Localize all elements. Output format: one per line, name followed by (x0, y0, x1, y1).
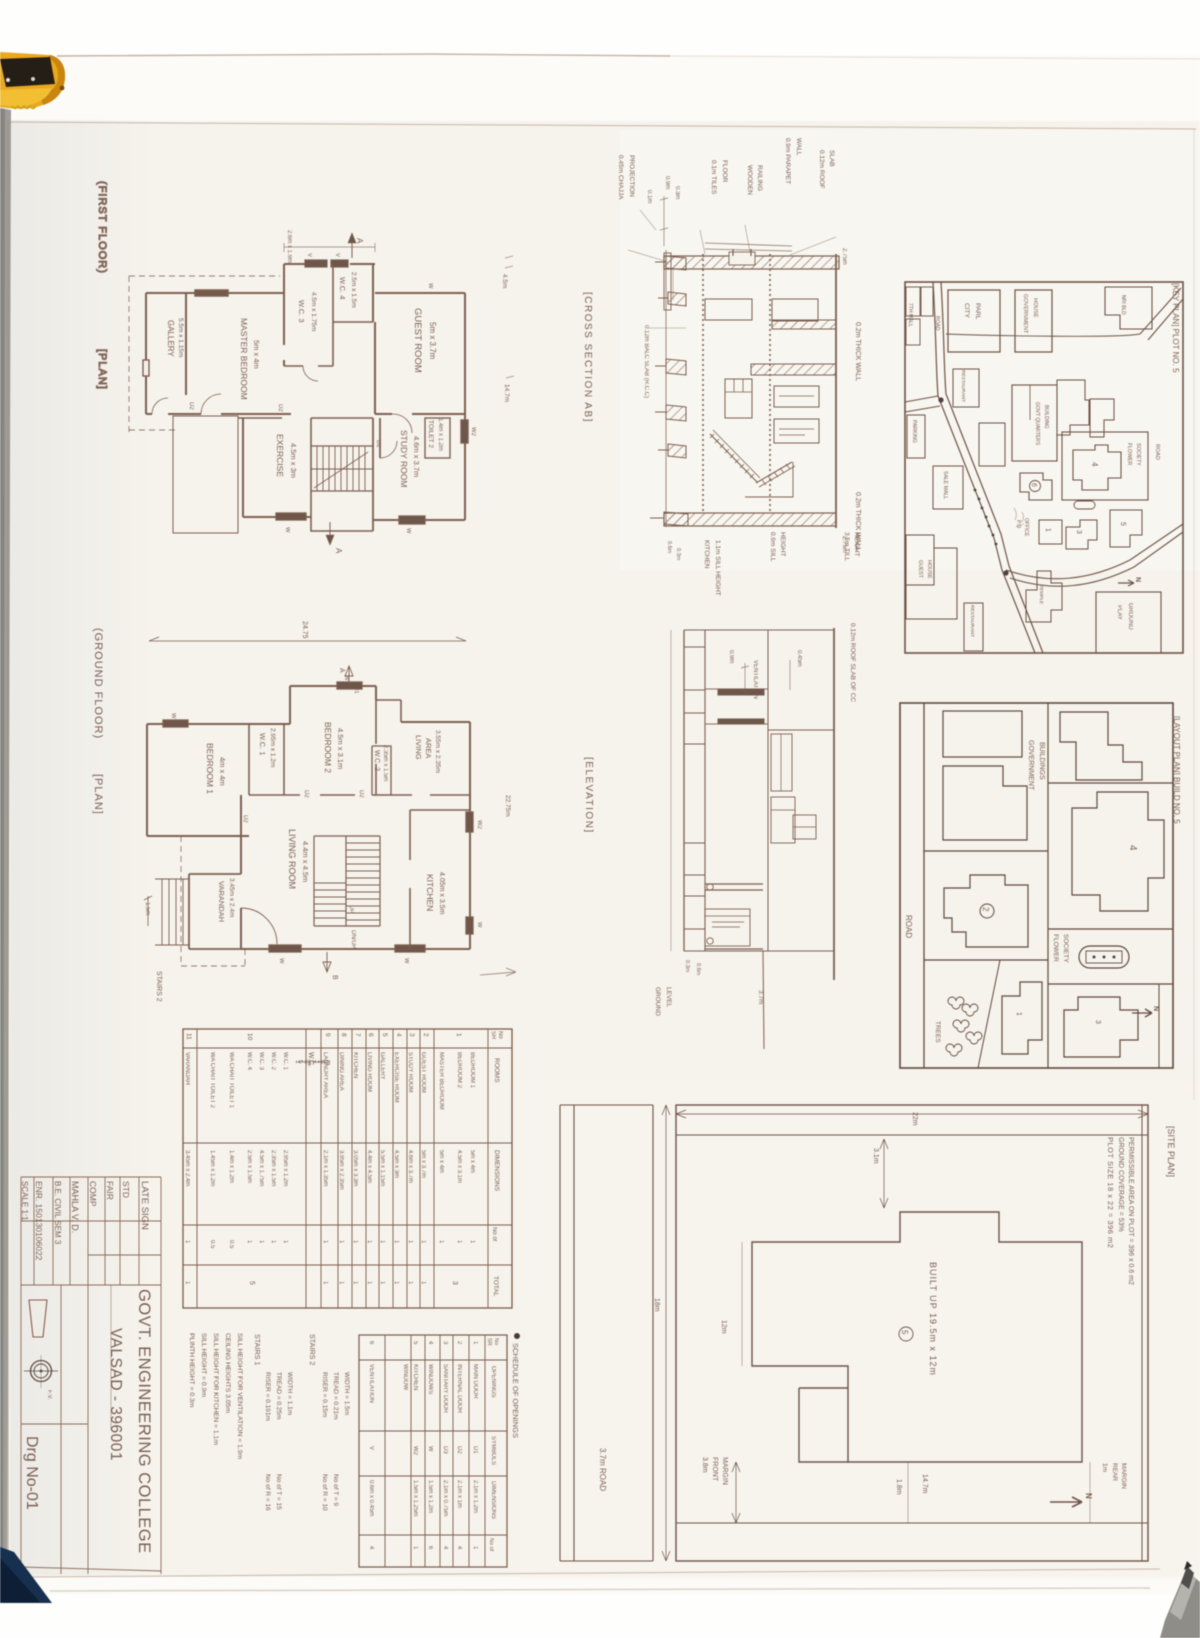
svg-text:OFFICE: OFFICE (1023, 518, 1029, 537)
svg-text:0.9m: 0.9m (728, 650, 734, 663)
svg-text:(GROUND FLOOR): (GROUND FLOOR) (92, 628, 104, 739)
svg-text:22.75m: 22.75m (504, 795, 511, 817)
svg-text:BUILT UP 19.5m x 12m: BUILT UP 19.5m x 12m (928, 1262, 938, 1376)
svg-text:STAIRS 2: STAIRS 2 (155, 971, 162, 1002)
svg-text:W2: W2 (476, 820, 482, 830)
svg-text:0.6m x 0.45m: 0.6m x 0.45m (368, 1480, 374, 1516)
svg-text:SILL HEIGHT FOR VENTILATION =: SILL HEIGHT FOR VENTILATION = 1.9m (236, 1333, 243, 1460)
svg-text:HEIGHT: HEIGHT (853, 532, 860, 557)
svg-text:W.C. 1: W.C. 1 (258, 733, 267, 756)
svg-text:3.7m: 3.7m (757, 990, 764, 1004)
svg-text:W2: W2 (470, 427, 476, 437)
svg-text:LATE SIGN: LATE SIGN (139, 1181, 150, 1230)
svg-text:WA CHAIT TOILET 2: WA CHAIT TOILET 2 (209, 1052, 215, 1109)
svg-text:3.05m x 3.3m: 3.05m x 3.3m (352, 1150, 358, 1186)
svg-text:3.45m x 2.4m: 3.45m x 2.4m (184, 1150, 190, 1186)
svg-text:SOCIETY: SOCIETY (1135, 443, 1141, 466)
svg-text:3: 3 (451, 1281, 458, 1285)
svg-text:0.5: 0.5 (209, 1240, 215, 1249)
svg-text:0.1m: 0.1m (646, 190, 652, 203)
svg-text:D2: D2 (375, 440, 381, 448)
svg-text:PROJECTION: PROJECTION (628, 155, 635, 197)
svg-text:MASTER BEDROOM: MASTER BEDROOM (438, 1052, 444, 1110)
svg-text:0.3m: 0.3m (674, 186, 680, 199)
svg-text:SR: SR (490, 1031, 496, 1040)
svg-text:GROUND COVERAGE = 53%: GROUND COVERAGE = 53% (1117, 1137, 1124, 1232)
svg-text:5m x 3.7m: 5m x 3.7m (420, 1150, 426, 1178)
svg-text:CEILING HEIGHTS 3.05m: CEILING HEIGHTS 3.05m (224, 1333, 231, 1413)
svg-text:B: B (331, 975, 338, 980)
svg-text:PLINTH HEIGHT = 0.3m: PLINTH HEIGHT = 0.3m (188, 1333, 195, 1408)
svg-text:1: 1 (1044, 528, 1051, 532)
svg-text:0.1m TILES: 0.1m TILES (710, 160, 717, 195)
svg-text:TEMPLE: TEMPLE (1038, 585, 1044, 604)
svg-text:8: 8 (340, 1033, 347, 1037)
svg-text:SR: SR (486, 1338, 492, 1346)
svg-text:TOTAL: TOTAL (492, 1276, 499, 1297)
svg-text:4.4m x 4.5m: 4.4m x 4.5m (366, 1150, 372, 1183)
svg-text:5: 5 (381, 1033, 388, 1037)
svg-text:0.45m: 0.45m (796, 650, 802, 667)
svg-text:(FIRST FLOOR): (FIRST FLOOR) (96, 181, 108, 274)
svg-text:2.1m x 1.35m: 2.1m x 1.35m (322, 1150, 328, 1186)
svg-text:1.45m x 1.2m: 1.45m x 1.2m (209, 1150, 215, 1186)
svg-text:11: 11 (185, 1033, 192, 1040)
svg-text:LIVING ROOM: LIVING ROOM (287, 829, 297, 889)
svg-text:0.12m ROOF: 0.12m ROOF (818, 150, 825, 189)
svg-text:W2: W2 (412, 1446, 418, 1456)
svg-text:4.5m x 3m: 4.5m x 3m (393, 1150, 399, 1178)
svg-text:2.75m: 2.75m (841, 536, 847, 553)
svg-text:TREAD = 0.21m: TREAD = 0.21m (332, 1372, 339, 1420)
svg-text:F.V.: F.V. (46, 1390, 52, 1400)
svg-text:SALE MALL: SALE MALL (942, 471, 948, 499)
svg-text:STAIRS 1: STAIRS 1 (253, 1334, 262, 1365)
svg-text:2.5m x 1.5m: 2.5m x 1.5m (246, 1150, 252, 1183)
svg-text:COMP: COMP (88, 1181, 98, 1207)
svg-text:4.05m x 3.5m: 4.05m x 3.5m (438, 872, 445, 915)
svg-text:SANITARY DOOR: SANITARY DOOR (442, 1364, 448, 1414)
svg-text:4.5m x 1.75m: 4.5m x 1.75m (310, 292, 317, 331)
svg-text:MAIN DOOR: MAIN DOOR (472, 1364, 478, 1399)
svg-text:W.C. 2: W.C. 2 (270, 1052, 276, 1071)
svg-text:GOVERNMENT: GOVERNMENT (1027, 740, 1034, 791)
svg-text:BUILDINGS: BUILDINGS (1038, 742, 1045, 780)
svg-text:3: 3 (408, 1033, 415, 1037)
svg-text:BEDROOM 1: BEDROOM 1 (205, 743, 215, 794)
svg-text:D2: D2 (188, 402, 194, 410)
svg-text:0.2m THICK WALL: 0.2m THICK WALL (854, 322, 861, 381)
svg-text:WIDTH = 1.5m: WIDTH = 1.5m (343, 1372, 350, 1415)
svg-text:BEDROOM 2: BEDROOM 2 (323, 722, 333, 773)
svg-text:D2: D2 (277, 404, 283, 412)
svg-text:KITCHEN: KITCHEN (703, 540, 710, 569)
svg-text:Drg No-01: Drg No-01 (23, 1436, 40, 1510)
svg-text:7TH MALL: 7TH MALL (907, 303, 913, 327)
svg-text:STUDY ROOM: STUDY ROOM (399, 430, 409, 487)
svg-text:DINING AREA: DINING AREA (338, 1052, 344, 1091)
svg-text:CITY: CITY (963, 303, 970, 318)
svg-text:WALL: WALL (795, 138, 802, 156)
svg-text:24.75: 24.75 (301, 621, 308, 639)
svg-text:W: W (427, 1446, 433, 1452)
svg-text:W: W (284, 527, 290, 533)
svg-text:SLAB: SLAB (828, 150, 835, 167)
svg-text:0.6m: 0.6m (695, 963, 701, 976)
svg-text:WA CHAIT TOILET 1: WA CHAIT TOILET 1 (228, 1052, 234, 1109)
svg-text:ROOMS: ROOMS (493, 1058, 500, 1083)
svg-text:HEIGHT: HEIGHT (779, 532, 786, 557)
svg-text:2.1m x 0.75m: 2.1m x 0.75m (442, 1480, 448, 1516)
svg-text:DN/UP: DN/UP (350, 930, 356, 949)
svg-text:FRONT: FRONT (711, 1457, 718, 1482)
svg-text:SILL HEIGHT = 0.9m: SILL HEIGHT = 0.9m (200, 1333, 207, 1397)
svg-text:1: 1 (1015, 1012, 1022, 1016)
svg-text:MAHLA V. D.: MAHLA V. D. (70, 1181, 80, 1233)
svg-text:22m: 22m (911, 1112, 918, 1126)
svg-text:2: 2 (422, 1033, 429, 1037)
svg-text:4: 4 (395, 1033, 402, 1037)
svg-text:D3: D3 (442, 1446, 448, 1454)
svg-text:V: V (306, 253, 312, 257)
svg-text:0.12m ROOF SLAB OF CC: 0.12m ROOF SLAB OF CC (849, 623, 856, 702)
svg-text:0.12m BALC SLAB (R.C.C): 0.12m BALC SLAB (R.C.C) (643, 325, 649, 398)
svg-text:W.C. 1: W.C. 1 (282, 1052, 288, 1071)
svg-text:7: 7 (354, 1033, 361, 1037)
svg-text:UP: UP (348, 905, 354, 913)
svg-text:5: 5 (900, 1330, 909, 1335)
svg-text:GOVT. ENGINEERING COLLEGE: GOVT. ENGINEERING COLLEGE (135, 1289, 153, 1554)
svg-text:W: W (278, 958, 284, 964)
svg-text:0.5: 0.5 (228, 1240, 234, 1249)
svg-text:INTERNAL DOOR: INTERNAL DOOR (456, 1364, 462, 1414)
svg-text:SCHEDULE OF OPENINGS: SCHEDULE OF OPENINGS (511, 1343, 520, 1438)
svg-text:W: W (403, 958, 409, 964)
svg-text:No of T = 9: No of T = 9 (332, 1474, 339, 1506)
svg-text:VENTILATION: VENTILATION (368, 1364, 374, 1403)
svg-text:TOILET 2: TOILET 2 (427, 420, 434, 448)
svg-text:[PLAN]: [PLAN] (92, 774, 104, 815)
svg-text:ROAD: ROAD (934, 316, 940, 331)
svg-text:[SITE PLAN]: [SITE PLAN] (1166, 1126, 1176, 1177)
svg-text:BEDROOM 1: BEDROOM 1 (469, 1052, 475, 1089)
svg-text:PLAY: PLAY (1116, 605, 1122, 620)
svg-text:GALLERY: GALLERY (379, 1052, 385, 1080)
svg-text:14.7m: 14.7m (921, 1474, 928, 1494)
svg-text:No: No (493, 1338, 499, 1345)
svg-text:LAUNDRY AREA: LAUNDRY AREA (322, 1052, 328, 1098)
svg-text:FLOOR: FLOOR (721, 160, 728, 183)
svg-text:1.5m x 1.2m: 1.5m x 1.2m (427, 1480, 433, 1513)
svg-text:V: V (334, 253, 340, 257)
svg-text:4: 4 (1127, 845, 1138, 851)
svg-text:1.5m x 1.25m: 1.5m x 1.25m (412, 1480, 418, 1516)
svg-text:KITCHEN: KITCHEN (352, 1052, 358, 1078)
svg-text:5m x 4m: 5m x 4m (469, 1150, 475, 1173)
svg-text:STUDY ROOM: STUDY ROOM (407, 1052, 413, 1093)
svg-text:0.45m CHAJJA: 0.45m CHAJJA (617, 155, 624, 200)
svg-text:TREAD = 0.25m: TREAD = 0.25m (275, 1372, 282, 1420)
svg-text:MASTER BEDROOM: MASTER BEDROOM (239, 318, 249, 400)
svg-text:PARL: PARL (974, 303, 981, 320)
svg-text:LIVING ROOM: LIVING ROOM (366, 1052, 372, 1092)
svg-text:RISER = 0.15m: RISER = 0.15m (321, 1372, 328, 1417)
svg-text:GOVERNMENT: GOVERNMENT (1022, 294, 1028, 334)
svg-text:3.45m x 2.4m: 3.45m x 2.4m (228, 878, 235, 917)
svg-text:W.C.: W.C. (307, 1052, 314, 1067)
svg-text:D1: D1 (353, 686, 359, 694)
svg-text:MARGIN: MARGIN (721, 1457, 728, 1485)
svg-text:[CROSS SECTION AB]: [CROSS SECTION AB] (582, 292, 593, 423)
svg-text:No: No (497, 1031, 503, 1039)
svg-text:4.5m: 4.5m (501, 274, 508, 288)
svg-text:W: W (405, 528, 411, 534)
svg-text:0.9m: 0.9m (664, 176, 670, 189)
svg-text:SCALE 1:1: SCALE 1:1 (20, 1181, 29, 1221)
svg-text:MARGIN: MARGIN (1120, 1463, 1127, 1489)
svg-text:VALSAD - 396001: VALSAD - 396001 (107, 1328, 124, 1461)
svg-text:2.35m x 1.5m: 2.35m x 1.5m (270, 1150, 276, 1186)
svg-text:VARANDAH: VARANDAH (217, 881, 226, 922)
svg-text:1.5m: 1.5m (144, 902, 150, 915)
svg-text:WINDOW: WINDOW (402, 1364, 408, 1391)
svg-text:B.E. CIVIL SEM 3: B.E. CIVIL SEM 3 (53, 1181, 62, 1245)
svg-text:5.5m x 1.15m: 5.5m x 1.15m (177, 318, 184, 357)
svg-text:0.3m: 0.3m (684, 960, 690, 973)
svg-text:0.9m PARAPET: 0.9m PARAPET (784, 138, 791, 184)
svg-text:VENTILATION: VENTILATION (752, 660, 758, 699)
svg-text:1: 1 (455, 1033, 462, 1037)
svg-text:10: 10 (246, 1033, 253, 1041)
svg-text:[KEY PLAN] PLOT NO. 5: [KEY PLAN] PLOT NO. 5 (1171, 283, 1180, 373)
svg-text:NRI BLD: NRI BLD (1120, 295, 1126, 315)
svg-text:No of T = 15: No of T = 15 (275, 1474, 282, 1510)
svg-text:D2: D2 (456, 1446, 462, 1454)
svg-text:DIMENSIONS: DIMENSIONS (493, 1150, 500, 1192)
svg-text:D1: D1 (472, 1446, 478, 1454)
svg-text:1m: 1m (1101, 1463, 1108, 1472)
svg-text:GROUND: GROUND (654, 987, 661, 1016)
svg-text:4.6m x 3.7m: 4.6m x 3.7m (407, 1150, 413, 1183)
svg-text:WINDOWS: WINDOWS (427, 1364, 433, 1394)
svg-text:5: 5 (248, 1281, 255, 1285)
svg-text:W.C. 4: W.C. 4 (338, 277, 347, 300)
svg-text:A: A (355, 238, 364, 244)
svg-text:4m x 4m: 4m x 4m (218, 757, 227, 786)
svg-text:5m x 4m: 5m x 4m (438, 1150, 444, 1173)
svg-text:GUEST ROOM: GUEST ROOM (412, 308, 423, 373)
svg-text:N: N (1134, 577, 1141, 582)
svg-text:W.C. 4: W.C. 4 (246, 1052, 252, 1071)
svg-text:2.1m x 1m: 2.1m x 1m (456, 1480, 462, 1508)
svg-text:0.9m SILL: 0.9m SILL (769, 532, 776, 562)
svg-text:2.95m x 1.2m: 2.95m x 1.2m (269, 728, 276, 767)
svg-text:0.3m: 0.3m (675, 548, 681, 561)
svg-text:ENR. 150130106022: ENR. 150130106022 (34, 1181, 44, 1261)
svg-text:HOUSE: HOUSE (1032, 298, 1038, 318)
svg-text:4.5m x 1.75m: 4.5m x 1.75m (258, 1150, 264, 1186)
svg-text:STD: STD (121, 1181, 131, 1198)
svg-text:D2: D2 (242, 815, 248, 823)
svg-text:VARANDAH: VARANDAH (184, 1052, 190, 1085)
svg-text:W: W (476, 922, 482, 928)
svg-text:GROUND: GROUND (1127, 603, 1133, 630)
svg-text:N: N (1152, 1006, 1159, 1011)
svg-text:1.4m x 1.2m: 1.4m x 1.2m (437, 418, 443, 451)
svg-text:EXERCISE: EXERCISE (275, 434, 285, 477)
svg-text:RESTAURANT: RESTAURANT (969, 605, 975, 637)
svg-text:SOCIETY: SOCIETY (1062, 934, 1069, 963)
svg-text:A: A (334, 548, 343, 554)
svg-text:FLOWER: FLOWER (1052, 934, 1059, 962)
svg-text:5m x 4m: 5m x 4m (252, 340, 261, 369)
svg-text:W.C. 2: W.C. 2 (373, 750, 380, 771)
svg-text:P.O: P.O (1015, 520, 1021, 528)
svg-text:BEDROOM 2: BEDROOM 2 (456, 1052, 462, 1089)
svg-text:AREA: AREA (424, 738, 433, 758)
svg-text:9: 9 (324, 1033, 331, 1037)
svg-text:WOODEN: WOODEN (746, 165, 753, 195)
svg-text:2.35m x 1.5m: 2.35m x 1.5m (382, 745, 388, 781)
svg-text:1.8m: 1.8m (895, 1479, 902, 1495)
svg-text:N: N (1084, 1493, 1093, 1499)
svg-text:D2: D2 (303, 790, 309, 798)
svg-text:3.95m x 2.35m: 3.95m x 2.35m (338, 1150, 344, 1190)
svg-text:SYMBOLS: SYMBOLS (490, 1436, 496, 1465)
svg-text:18m: 18m (653, 1298, 660, 1312)
svg-text:No of R = 16: No of R = 16 (264, 1474, 271, 1511)
svg-text:BUILDING: BUILDING (1043, 405, 1049, 429)
svg-text:W.C. 3: W.C. 3 (297, 300, 306, 323)
svg-text:3: 3 (1075, 530, 1082, 534)
svg-text:3.1m: 3.1m (872, 1148, 879, 1164)
svg-text:REAR: REAR (1111, 1463, 1118, 1481)
svg-text:DIMENSIONS: DIMENSIONS (490, 1481, 496, 1519)
svg-text:KITCHEN: KITCHEN (412, 1364, 418, 1390)
svg-text:2.1m x 1.2m: 2.1m x 1.2m (472, 1480, 478, 1513)
svg-text:PERMISSIBLE AREA ON PLOT = 396: PERMISSIBLE AREA ON PLOT = 396 x 0.6 m2 (1127, 1137, 1134, 1285)
svg-text:HOUSE: HOUSE (926, 560, 932, 579)
svg-text:2.5m x 1.5m: 2.5m x 1.5m (350, 272, 357, 308)
svg-text:3.7m ROAD: 3.7m ROAD (598, 1448, 607, 1491)
svg-text:V: V (368, 1446, 374, 1450)
svg-text:W.C. 3: W.C. 3 (258, 1052, 264, 1071)
svg-text:No of: No of (488, 1538, 494, 1552)
svg-text:5: 5 (1119, 522, 1126, 526)
svg-text:0.6m: 0.6m (666, 541, 672, 554)
svg-text:GUEST: GUEST (917, 560, 923, 579)
svg-text:LEVEL: LEVEL (665, 987, 672, 1008)
svg-text:6: 6 (1030, 483, 1037, 487)
svg-text:[PLAN]: [PLAN] (96, 349, 108, 390)
svg-text:[LAYOUT PLAN] BUILD NO. 5: [LAYOUT PLAN] BUILD NO. 5 (1172, 716, 1181, 824)
svg-text:4.6m x 3.7m: 4.6m x 3.7m (412, 436, 421, 477)
svg-text:RISER = 0.191m: RISER = 0.191m (264, 1372, 271, 1421)
svg-text:14.7m: 14.7m (503, 384, 510, 402)
svg-text:12m: 12m (720, 1320, 727, 1334)
svg-text:LIVING: LIVING (414, 735, 423, 760)
svg-text:EXERCISE ROOM: EXERCISE ROOM (393, 1052, 399, 1103)
svg-text:3.55m x 2.35m: 3.55m x 2.35m (434, 730, 441, 773)
svg-text:OPENINGS: OPENINGS (490, 1366, 496, 1398)
svg-text:RESTAURANT: RESTAURANT (960, 370, 966, 402)
svg-text:1.1m SILL HEIGHT: 1.1m SILL HEIGHT (714, 540, 721, 596)
svg-text:2: 2 (981, 907, 990, 912)
svg-text:[ELEVATION]: [ELEVATION] (583, 757, 594, 834)
svg-text:GOVT QUARTERS: GOVT QUARTERS (1034, 402, 1040, 446)
svg-text:ROAD: ROAD (1154, 444, 1160, 460)
svg-text:GALLERY: GALLERY (166, 320, 175, 357)
svg-text:GUEST ROOM: GUEST ROOM (420, 1052, 426, 1093)
svg-text:No of: No of (491, 1227, 497, 1242)
svg-text:TREES: TREES (934, 1021, 941, 1043)
svg-text:2.75m: 2.75m (841, 248, 847, 265)
svg-text:D2: D2 (358, 790, 364, 798)
svg-text:KITCHEN: KITCHEN (425, 874, 435, 911)
svg-text:RAILING: RAILING (756, 165, 763, 191)
svg-text:PARKING: PARKING (911, 420, 917, 443)
svg-text:4.5m x 3.1m: 4.5m x 3.1m (336, 728, 345, 769)
svg-text:W: W (343, 675, 349, 681)
svg-text:No of R = 10: No of R = 10 (321, 1474, 328, 1511)
svg-text:6: 6 (367, 1033, 374, 1037)
svg-text:4.5m x 3m: 4.5m x 3m (289, 443, 298, 478)
svg-text:2.6m x 1.9m: 2.6m x 1.9m (286, 230, 292, 263)
svg-text:3: 3 (1094, 1020, 1101, 1024)
svg-text:STAIRS 2: STAIRS 2 (308, 1334, 317, 1365)
svg-text:W: W (170, 713, 176, 719)
svg-text:1.4m x 1.2m: 1.4m x 1.2m (228, 1150, 234, 1183)
svg-text:A: A (338, 668, 345, 673)
svg-text:5.5m x 1.15m: 5.5m x 1.15m (379, 1150, 385, 1186)
svg-text:SILL HEIGHT FOR KITCHEN = 1.1m: SILL HEIGHT FOR KITCHEN = 1.1m (212, 1333, 219, 1445)
svg-text:W: W (427, 283, 433, 289)
svg-text:4.5m x 3.1m: 4.5m x 3.1m (456, 1150, 462, 1183)
svg-text:WIDTH = 1.1m: WIDTH = 1.1m (286, 1372, 293, 1415)
svg-text:4: 4 (1090, 462, 1099, 467)
svg-text:PLOT SIZE 18 x 22 = 396 m2: PLOT SIZE 18 x 22 = 396 m2 (1106, 1137, 1115, 1248)
svg-text:4.4m x 4.5m: 4.4m x 4.5m (301, 841, 310, 882)
svg-text:FAIR: FAIR (105, 1181, 115, 1200)
svg-text:3.8m: 3.8m (701, 1457, 708, 1473)
svg-text:FLOWER: FLOWER (1126, 443, 1132, 465)
svg-text:5m x 3.7m: 5m x 3.7m (428, 322, 437, 360)
svg-text:2.95m x 1.2m: 2.95m x 1.2m (282, 1150, 288, 1186)
svg-text:ROAD: ROAD (904, 915, 913, 938)
